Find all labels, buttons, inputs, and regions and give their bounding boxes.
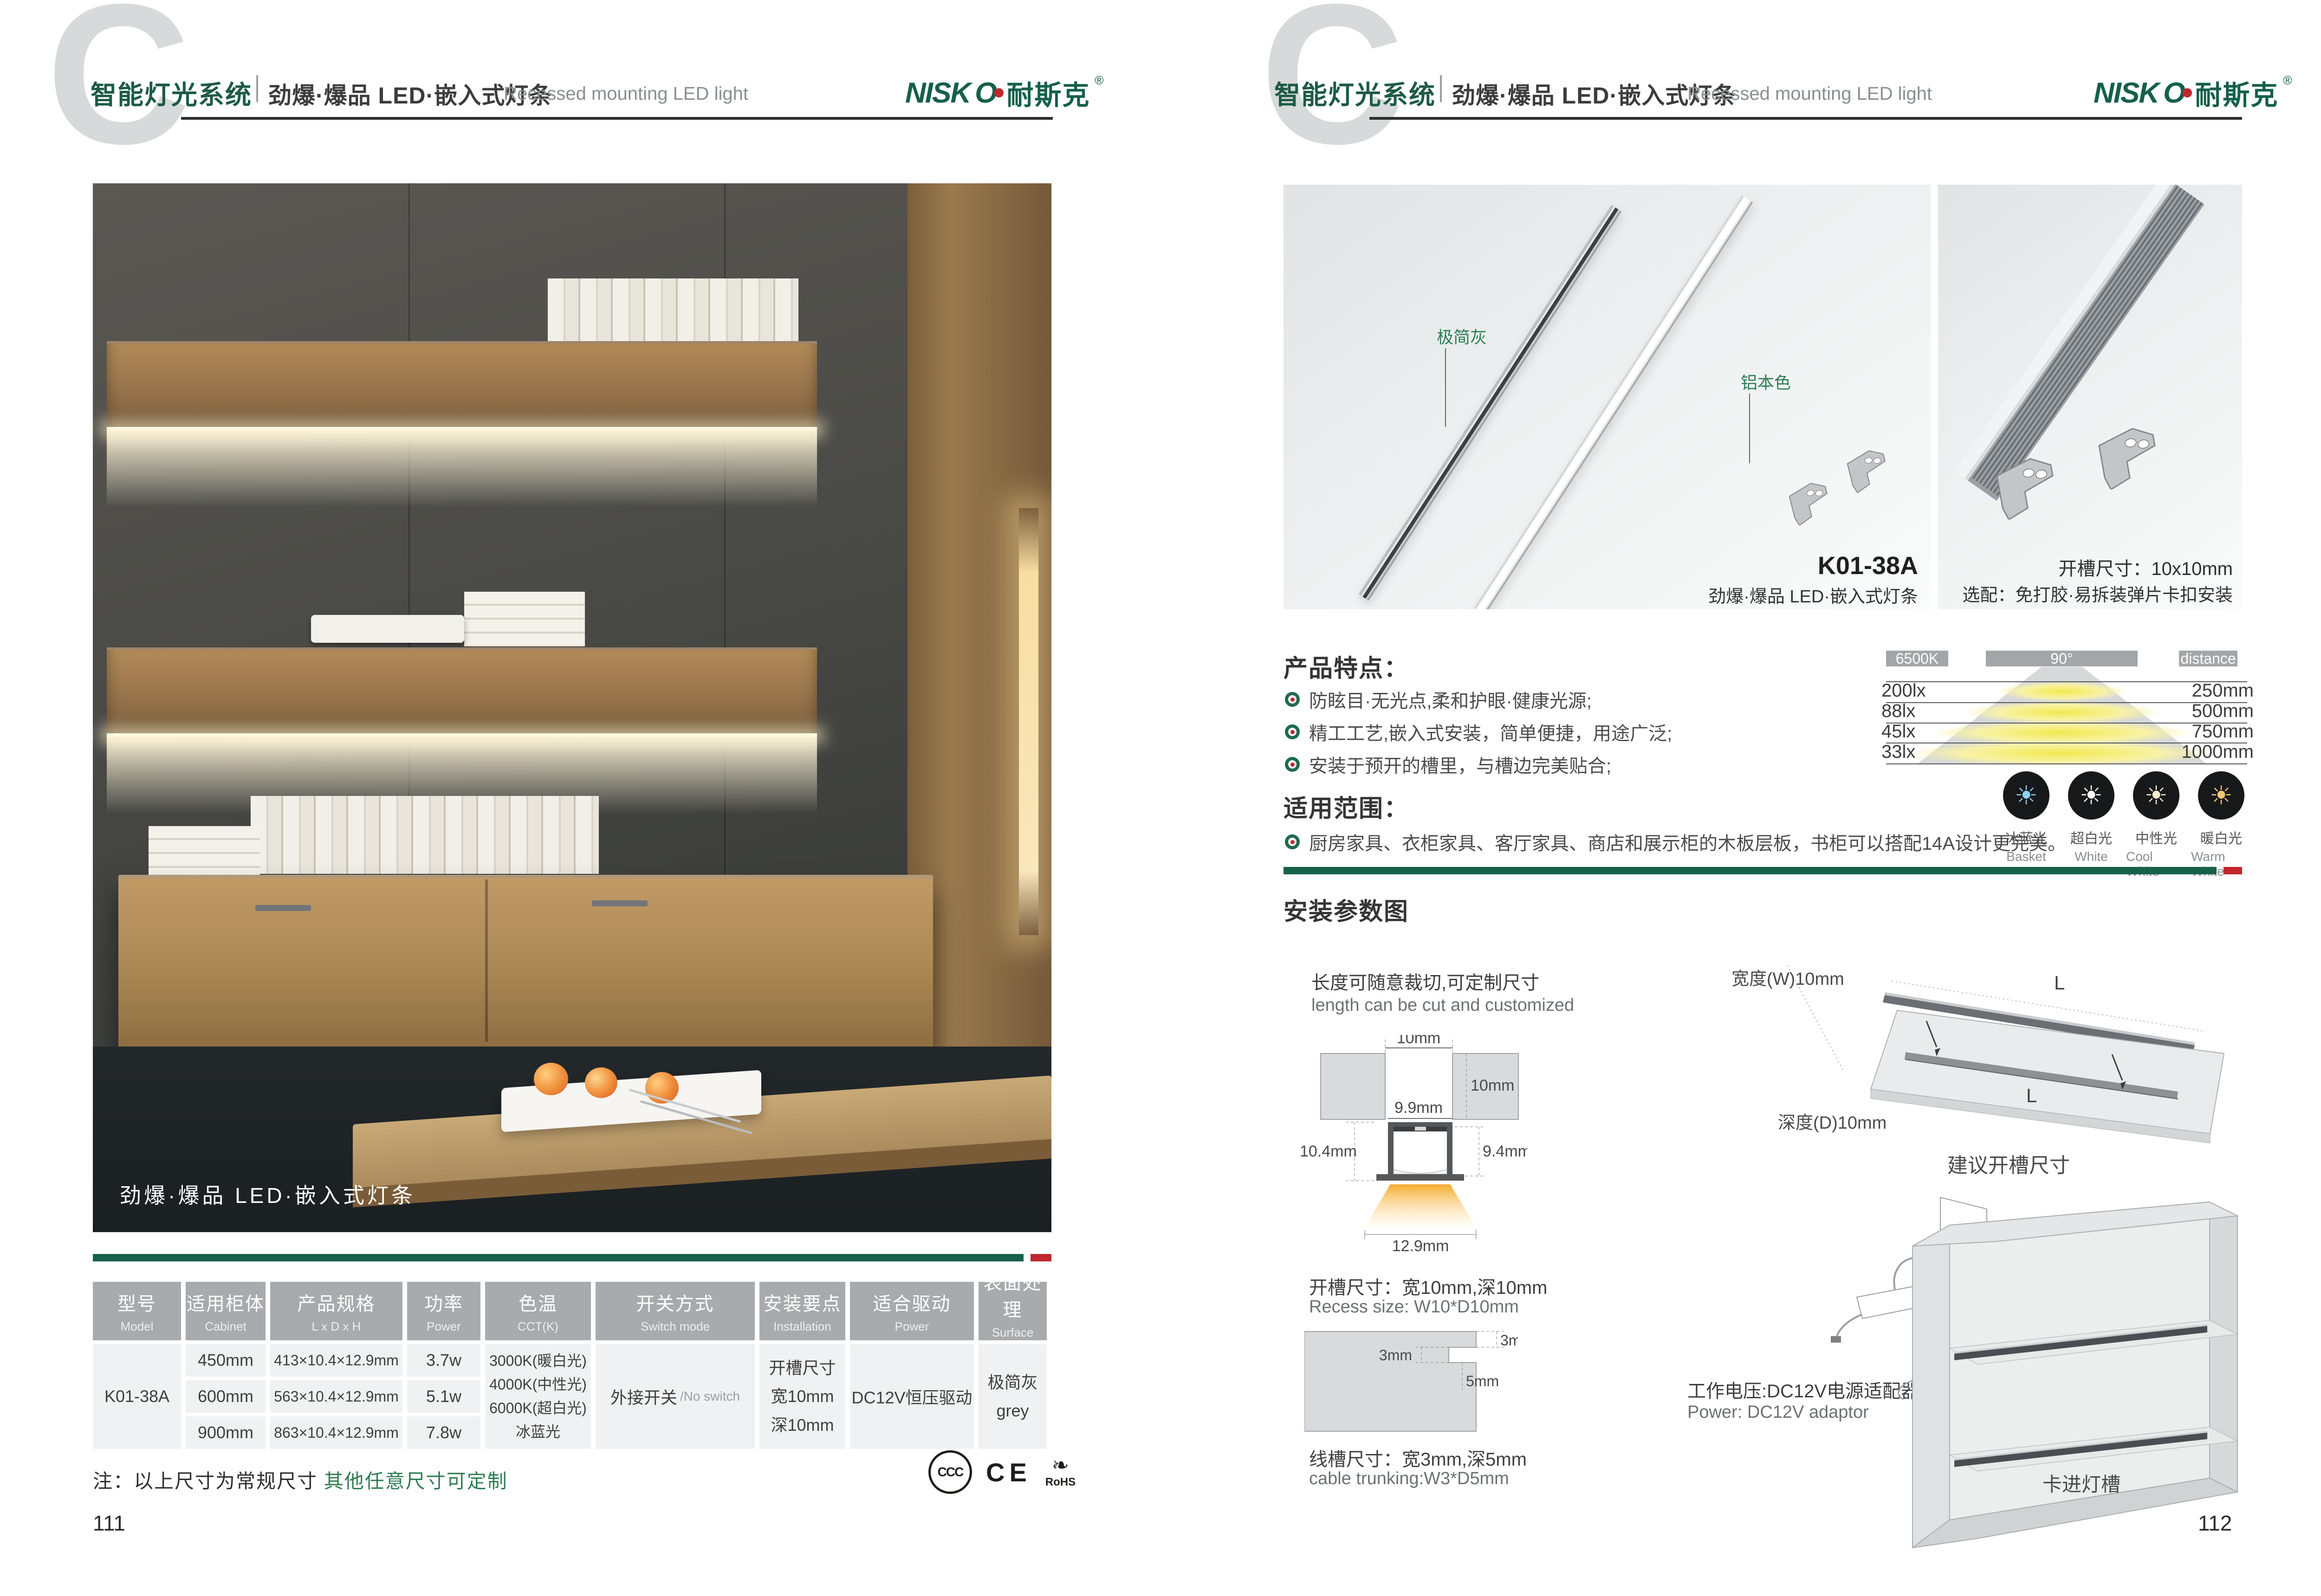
tray (311, 615, 464, 643)
trunk-zh: 线槽尺寸：宽3mm,深5mm (1309, 1444, 1527, 1471)
logo-registered: ® (1095, 73, 1103, 88)
th-zh: 适合驱动 (873, 1289, 951, 1316)
mounting-clip-icon (1839, 444, 1893, 495)
install-title: 安装参数图 (1284, 892, 1409, 927)
cell-install: 开槽尺寸 宽10mm 深10mm (759, 1344, 845, 1449)
logo-registered: ® (2283, 73, 2292, 88)
target-bullet-icon (1285, 692, 1300, 707)
th-en: Installation (773, 1319, 831, 1334)
cell-power-450: 3.7w (407, 1344, 480, 1376)
trunk-dim-a: 3mm (1500, 1332, 1518, 1349)
feature-item: 安装于预开的槽里，与槽边完美贴合; (1285, 751, 1611, 778)
th-zh: 表面处理 (979, 1268, 1047, 1322)
th-zh: 色温 (519, 1289, 558, 1316)
catalog-spread: C 智能灯光系统 劲爆·爆品 LED·嵌入式灯条 Recessed mounti… (0, 0, 2321, 1596)
board-diagram: L L (1787, 965, 2261, 1179)
col-header-install: 安装要点Installation (759, 1282, 845, 1340)
scope-title: 适用范围： (1284, 789, 1409, 824)
option-caption: 选配：免打胶·易拆装弹片卡扣安装 (1962, 581, 2233, 606)
logo-latin: NISK (905, 77, 970, 110)
cell-power-600: 5.1w (407, 1380, 480, 1413)
swatch-disc: ☀ (2198, 771, 2244, 820)
install-line: 开槽尺寸 (769, 1354, 836, 1382)
mounting-clip-icon (1984, 451, 2063, 522)
swatch-ice-blue: ☀ 冰蓝光 Basket (1996, 771, 2056, 879)
book-stack (464, 592, 585, 646)
dim-beam-width: 12.9mm (1392, 1237, 1449, 1253)
th-zh: 产品规格 (298, 1289, 376, 1316)
col-header-driver: 适合驱动Power (850, 1282, 974, 1340)
th-en: Switch mode (641, 1319, 710, 1334)
dim-slot-depth: 10mm (1471, 1077, 1514, 1094)
install-line: 宽10mm (771, 1382, 834, 1410)
mounting-clip-icon (1781, 477, 1835, 528)
th-en: Model (121, 1319, 154, 1334)
target-bullet-icon (1285, 757, 1300, 772)
cross-section-diagram: 10mm 10mm 9.9mm 10.4mm 9.4mm (1295, 1035, 1527, 1253)
led-glow-wash (107, 429, 817, 507)
cell-power-900: 7.8w (407, 1416, 480, 1449)
certifications: CCC CE ❧ RoHS (928, 1450, 1076, 1494)
surface-en: grey (996, 1396, 1029, 1425)
col-header-cabinet: 适用柜体Cabinet (186, 1282, 266, 1340)
photo-overlay-caption: 劲爆·爆品 LED·嵌入式灯条 (120, 1179, 415, 1209)
lux-label: 33lx (1881, 742, 1915, 762)
lux-label: 200lx (1881, 680, 1926, 701)
drawer-handle (592, 900, 648, 906)
spec-table: 型号Model 适用柜体Cabinet 产品规格L x D x H 功率Powe… (93, 1282, 1047, 1449)
peach (585, 1067, 617, 1098)
ce-cert-icon: CE (986, 1457, 1031, 1487)
cut-note-en: length can be cut and customized (1311, 995, 1574, 1015)
col-header-model: 型号Model (93, 1282, 181, 1340)
th-en: L x D x H (312, 1319, 361, 1334)
note-green: 其他任意尺寸可定制 (324, 1470, 508, 1492)
feature-text: 防眩目·无光点,柔和护眼·健康光源; (1309, 686, 1592, 713)
th-en: Power (427, 1319, 461, 1334)
logo-o: O (975, 77, 996, 110)
cct-line: 3000K(暖白光) (489, 1349, 587, 1373)
lux-label: 88lx (1881, 701, 1915, 722)
swatch-zh: 暖白光 (2200, 827, 2242, 847)
target-bullet-icon (1285, 834, 1300, 849)
peach (534, 1063, 568, 1095)
distance-label: 250mm (2170, 680, 2254, 701)
finish-label-gray: 极简灰 (1437, 324, 1487, 348)
board-depth-label: 深度(D)10mm (1778, 1108, 1887, 1134)
lux-label: 45lx (1881, 721, 1915, 742)
scope-text: 厨房家具、衣柜家具、客厅家具、商店和展示柜的木板层板，书柜可以搭配14A设计更完… (1309, 828, 2066, 855)
cct-swatches: ☀ 冰蓝光 Basket ☀ 超白光 White ☀ 中性光 Cool Whit… (1996, 771, 2251, 879)
surface-zh: 极简灰 (987, 1368, 1037, 1396)
divider-green (1284, 867, 2217, 874)
feature-text: 精工工艺,嵌入式安装，简单便捷，用途广泛; (1309, 718, 1672, 745)
clip-in-label: 卡进灯槽 (2042, 1469, 2120, 1497)
divider-green (93, 1254, 1024, 1261)
header-divider (256, 75, 258, 102)
books-row (251, 796, 599, 874)
beam-ellipse (1997, 681, 2127, 702)
swatch-en: White (2075, 849, 2108, 864)
cell-spec-900: 863×10.4×12.9mm (270, 1416, 402, 1449)
logo-latin: NISK (2094, 77, 2159, 110)
page-subtitle-en: Recessed mounting LED light (504, 84, 748, 104)
th-zh: 适用柜体 (187, 1289, 265, 1316)
board-caption: 建议开槽尺寸 (1947, 1149, 2070, 1178)
th-en: Power (895, 1319, 929, 1334)
led-strip-gray (1359, 205, 1621, 601)
note-black: 注：以上尺寸为常规尺寸 (93, 1470, 318, 1492)
swatch-disc: ☀ (2003, 771, 2049, 820)
header-divider (1440, 75, 1442, 102)
size-note: 注：以上尺寸为常规尺寸 其他任意尺寸可定制 (93, 1466, 508, 1494)
dim-right-height: 9.4mm (1483, 1143, 1527, 1160)
col-header-cct: 色温CCT(K) (485, 1282, 591, 1340)
th-zh: 型号 (117, 1289, 156, 1316)
board-length-mid: L (2026, 1085, 2037, 1106)
header-rule-left (181, 117, 1053, 120)
feature-item: 防眩目·无光点,柔和护眼·健康光源; (1285, 686, 1592, 713)
sun-icon: ☀ (2080, 782, 2103, 808)
book-stack (149, 826, 260, 875)
trunk-dim-b: 3mm (1379, 1347, 1412, 1363)
switch-zh: 外接开关 (610, 1384, 677, 1409)
trunking-diagram: 3mm 3mm 5mm (1304, 1325, 1518, 1436)
page-title-system: 智能灯光系统 (1274, 74, 1436, 112)
divider-red (2224, 867, 2242, 874)
trunk-en: cable trunking:W3*D5mm (1309, 1469, 1509, 1489)
brand-logo: NISK O 耐斯克 ® (905, 73, 1104, 112)
cabinet-glow (1019, 508, 1038, 935)
lifestyle-photo: 劲爆·爆品 LED·嵌入式灯条 (93, 183, 1051, 1232)
cell-cct: 3000K(暖白光) 4000K(中性光) 6000K(超白光) 冰蓝光 (485, 1344, 591, 1449)
logo-cn: 耐斯克 (2195, 73, 2278, 112)
wall-shelf-upper (107, 341, 817, 429)
sideboard (118, 875, 933, 1050)
swatch-disc: ☀ (2068, 771, 2114, 820)
dim-inner-width: 9.9mm (1394, 1099, 1443, 1117)
th-en: Cabinet (205, 1319, 246, 1334)
product-model: K01-38A (1818, 551, 1918, 580)
swatch-zh: 中性光 (2135, 827, 2177, 847)
cell-cabinet-900: 900mm (186, 1416, 266, 1449)
page-subtitle-en: Recessed mounting LED light (1687, 84, 1932, 104)
cell-cabinet-450: 450mm (186, 1344, 266, 1376)
swatch-cool-white: ☀ 中性光 Cool White (2126, 771, 2186, 879)
cct-line: 冰蓝光 (516, 1420, 560, 1444)
swatch-disc: ☀ (2133, 771, 2179, 820)
divider-red (1031, 1254, 1051, 1261)
product-photo-strips: 极简灰 铝本色 K01-38A 劲爆·爆品 LED·嵌入式灯条 (1284, 185, 1931, 609)
th-zh: 安装要点 (764, 1289, 842, 1316)
th-zh: 开关方式 (636, 1289, 714, 1316)
distance-label: 1000mm (2170, 742, 2254, 762)
cell-cabinet-600: 600mm (186, 1380, 266, 1413)
cct-line: 4000K(中性光) (489, 1373, 587, 1396)
books-row (548, 278, 798, 341)
brand-logo: NISK O 耐斯克 ® (2094, 73, 2292, 112)
beam-ellipse (1909, 740, 2215, 767)
cell-surface: 极简灰 grey (979, 1344, 1047, 1449)
ccc-cert-icon: CCC (928, 1450, 972, 1494)
features-title: 产品特点： (1284, 649, 1409, 684)
trunk-dim-c: 5mm (1466, 1373, 1499, 1389)
cct-line: 6000K(超白光) (489, 1396, 587, 1420)
page-number-left: 111 (93, 1511, 125, 1536)
swatch-warm-white: ☀ 暖白光 Warm White (2191, 771, 2251, 879)
logo-o: O (2163, 77, 2185, 110)
recess-en: Recess size: W10*D10mm (1309, 1297, 1519, 1317)
sun-icon: ☀ (2210, 782, 2233, 808)
th-zh: 功率 (424, 1289, 463, 1316)
product-photo-profile: 开槽尺寸：10x10mm 选配：免打胶·易拆装弹片卡扣安装 (1938, 185, 2242, 609)
target-bullet-icon (1285, 724, 1300, 739)
dim-slot-width: 10mm (1397, 1035, 1440, 1047)
profile-ribs (1972, 186, 2204, 497)
dim-left-height: 10.4mm (1300, 1143, 1357, 1160)
cell-switch: 外接开关 /No switch (596, 1344, 755, 1449)
chart-gridline (1886, 763, 2247, 764)
distance-badge: distance (2179, 651, 2237, 666)
power-en: Power: DC12V adaptor (1687, 1402, 1869, 1422)
sun-icon: ☀ (2145, 782, 2168, 808)
finish-label-aluminium: 铝本色 (1741, 369, 1791, 394)
install-line: 深10mm (771, 1411, 834, 1439)
cell-model: K01-38A (93, 1344, 181, 1449)
feature-text: 安装于预开的槽里，与槽边完美贴合; (1309, 751, 1611, 778)
col-header-surface: 表面处理Surface treatment (979, 1282, 1047, 1340)
beam-angle-badge: 90° (1986, 651, 2138, 666)
swatch-en: Cool White (2126, 849, 2186, 879)
drawer-handle (255, 905, 311, 911)
sun-icon: ☀ (2015, 782, 2038, 808)
th-en: CCT(K) (518, 1319, 558, 1334)
cell-spec-600: 563×10.4×12.9mm (270, 1380, 402, 1413)
swatch-zh: 超白光 (2070, 827, 2112, 847)
recess-zh: 开槽尺寸：宽10mm,深10mm (1309, 1273, 1547, 1299)
rohs-cert-icon: ❧ RoHS (1045, 1455, 1076, 1489)
feature-item: 精工工艺,嵌入式安装，简单便捷，用途广泛; (1285, 718, 1672, 745)
product-caption: 劲爆·爆品 LED·嵌入式灯条 (1708, 582, 1918, 607)
header-rule-right (1369, 117, 2242, 120)
board-length-top: L (2054, 972, 2065, 994)
col-header-power: 功率Power (407, 1282, 480, 1340)
kelvin-badge: 6500K (1886, 651, 1948, 666)
label-leader-line (1749, 394, 1750, 463)
recess-size-caption: 开槽尺寸：10x10mm (2058, 554, 2233, 581)
leaf-icon: ❧ (1052, 1455, 1069, 1476)
wall-shelf-lower (107, 647, 817, 736)
drawer-divider (485, 879, 488, 1042)
cell-driver: DC12V恒压驱动 (850, 1344, 974, 1449)
distance-label: 500mm (2170, 701, 2254, 722)
distance-label: 750mm (2170, 721, 2254, 742)
switch-en: /No switch (680, 1389, 740, 1404)
logo-cn: 耐斯克 (1006, 73, 1090, 112)
swatch-en: Warm White (2191, 849, 2251, 879)
mounting-clip-icon (2087, 420, 2165, 492)
swatch-white: ☀ 超白光 White (2061, 771, 2121, 879)
board-width-label: 宽度(W)10mm (1731, 964, 1844, 990)
cut-note-zh: 长度可随意裁切,可定制尺寸 (1311, 968, 1539, 995)
illumination-chart: 6500K 90° distance 200lx 88lx 45lx 33lx … (1878, 651, 2254, 767)
cell-spec-450: 413×10.4×12.9mm (270, 1344, 402, 1376)
page-title-system: 智能灯光系统 (91, 74, 252, 112)
logo-red-dot-icon (2183, 88, 2192, 97)
page-number-right: 112 (2198, 1511, 2232, 1536)
col-header-switch: 开关方式Switch mode (596, 1282, 755, 1340)
scope-item: 厨房家具、衣柜家具、客厅家具、商店和展示柜的木板层板，书柜可以搭配14A设计更完… (1285, 828, 2066, 855)
logo-red-dot-icon (994, 88, 1004, 97)
label-leader-line (1445, 348, 1446, 427)
rohs-label: RoHS (1045, 1476, 1076, 1489)
col-header-spec: 产品规格L x D x H (270, 1282, 402, 1340)
led-strip-aluminium (1474, 195, 1753, 609)
